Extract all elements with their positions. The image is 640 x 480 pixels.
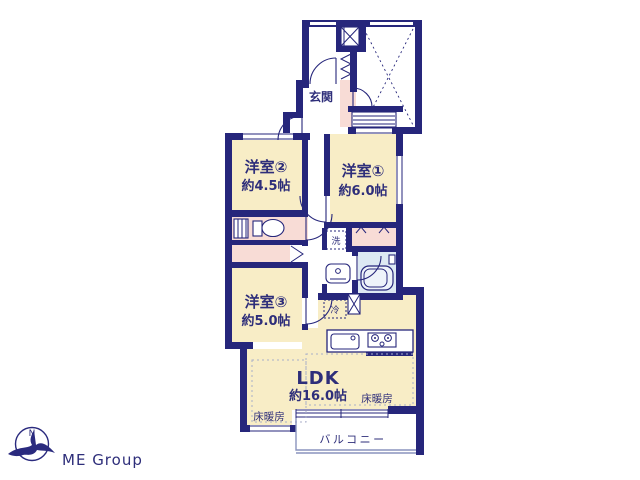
window-ldk-left <box>250 425 290 432</box>
stove-icon <box>368 333 396 347</box>
room3-size-label: 約5.0帖 <box>241 313 290 329</box>
floorplan-canvas: 玄関 洋室② 約4.5帖 洋室① 約6.0帖 洋室③ 約5.0帖 LDK 約16… <box>0 0 640 480</box>
window-room1-top <box>356 127 392 134</box>
company-logo: N ME Group <box>8 428 143 470</box>
folding-door-mark <box>291 246 303 262</box>
window-corridor-top <box>370 21 413 26</box>
room1-name-label: 洋室① <box>342 162 385 180</box>
floor-heating-right-label: 床暖房 <box>361 392 393 405</box>
window-room2-top <box>243 133 293 140</box>
hall-door <box>310 58 336 84</box>
floor-heating-left-label: 床暖房 <box>253 410 285 423</box>
window-room1-right <box>396 156 403 204</box>
window-hall-top <box>310 21 336 26</box>
kitchen-sink <box>331 334 359 349</box>
genkan-label: 玄関 <box>309 89 333 104</box>
entry-closet <box>352 112 396 127</box>
closet-room3 <box>232 245 290 262</box>
ldk-name-label: LDK <box>296 368 339 389</box>
pipe-shaft-box <box>348 294 360 314</box>
room2-floor <box>232 140 302 212</box>
room2-size-label: 約4.5帖 <box>241 178 290 194</box>
ldk-floor-mouth <box>302 328 318 349</box>
room2-name-label: 洋室② <box>245 158 288 176</box>
kitchen-counter <box>327 330 413 352</box>
washer-label: 洗 <box>331 235 340 247</box>
floorplan-page: 玄関 洋室② 約4.5帖 洋室① 約6.0帖 洋室③ 約5.0帖 LDK 約16… <box>0 0 640 480</box>
balcony-label: バルコニー <box>319 433 386 446</box>
room1-size-label: 約6.0帖 <box>338 183 387 199</box>
shaft-box <box>341 27 359 46</box>
toilet-icon <box>234 219 284 238</box>
fridge-label: 冷 <box>330 304 339 316</box>
washbasin-icon <box>326 264 350 283</box>
window-balcony-slider <box>296 409 388 418</box>
room3-name-label: 洋室③ <box>245 293 288 311</box>
ldk-size-label: 約16.0帖 <box>289 388 347 404</box>
logo-company-name: ME Group <box>62 451 143 469</box>
shoe-rack-icon <box>341 54 351 79</box>
closet-room1 <box>352 228 396 246</box>
